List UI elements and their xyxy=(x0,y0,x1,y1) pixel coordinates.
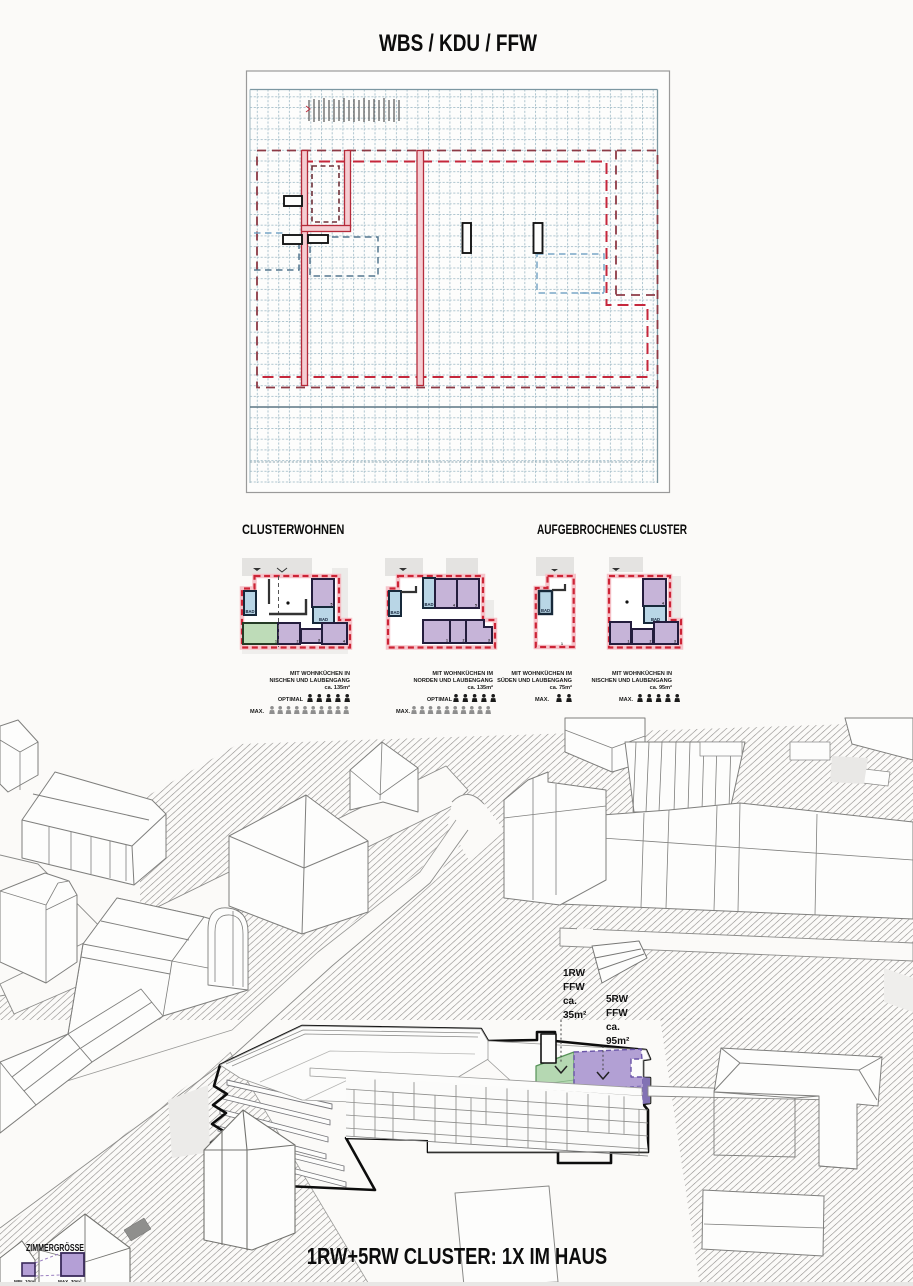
svg-text:2: 2 xyxy=(463,639,465,643)
svg-text:5: 5 xyxy=(475,604,477,608)
svg-text:MAX.: MAX. xyxy=(619,697,633,703)
svg-text:MIT WOHNKÜCHEN IM: MIT WOHNKÜCHEN IM xyxy=(511,670,572,677)
svg-text:BAD: BAD xyxy=(541,608,550,613)
svg-text:MAX.: MAX. xyxy=(535,697,549,703)
svg-text:FFW: FFW xyxy=(606,1008,628,1019)
svg-text:NISCHEN UND LAUBENGANG: NISCHEN UND LAUBENGANG xyxy=(592,678,673,684)
svg-text:NISCHEN UND LAUBENGANG: NISCHEN UND LAUBENGANG xyxy=(270,678,351,684)
svg-text:2: 2 xyxy=(650,640,652,644)
svg-text:1: 1 xyxy=(446,639,448,643)
svg-text:4: 4 xyxy=(453,604,455,608)
svg-text:1RW: 1RW xyxy=(563,968,586,979)
svg-text:OPTIMAL: OPTIMAL xyxy=(278,697,304,703)
svg-text:ca. 75m²: ca. 75m² xyxy=(550,684,573,691)
svg-text:ca. 135m²: ca. 135m² xyxy=(325,684,351,691)
svg-text:4: 4 xyxy=(662,602,664,606)
svg-text:5RW: 5RW xyxy=(606,994,629,1005)
svg-text:35m²: 35m² xyxy=(563,1010,587,1021)
svg-text:2: 2 xyxy=(297,640,299,644)
svg-text:ca.: ca. xyxy=(563,996,577,1007)
svg-text:5: 5 xyxy=(331,603,333,607)
svg-text:BAD: BAD xyxy=(319,617,328,622)
svg-text:OPTIMAL: OPTIMAL xyxy=(427,697,453,703)
svg-text:ca. 135m²: ca. 135m² xyxy=(468,684,494,691)
svg-text:1: 1 xyxy=(275,640,277,644)
svg-text:MIT WOHNKÜCHEN IN: MIT WOHNKÜCHEN IN xyxy=(290,670,350,677)
svg-text:ca. 95m²: ca. 95m² xyxy=(650,684,673,691)
svg-text:BAD: BAD xyxy=(651,617,660,622)
svg-text:SÜDEN UND LAUBENGANG: SÜDEN UND LAUBENGANG xyxy=(497,677,572,684)
svg-text:BAD: BAD xyxy=(391,610,400,615)
svg-text:3: 3 xyxy=(318,639,320,643)
svg-text:95m²: 95m² xyxy=(606,1036,630,1047)
svg-text:BAD: BAD xyxy=(246,609,255,614)
svg-text:MAX.: MAX. xyxy=(396,709,410,715)
svg-text:FFW: FFW xyxy=(563,982,585,993)
svg-text:1: 1 xyxy=(561,642,563,646)
svg-text:MAX.: MAX. xyxy=(250,709,264,715)
svg-text:BAD: BAD xyxy=(425,602,434,607)
svg-text:1: 1 xyxy=(628,640,630,644)
svg-text:ca.: ca. xyxy=(606,1022,620,1033)
svg-text:ZIMMERGRÖSSE: ZIMMERGRÖSSE xyxy=(26,1241,84,1254)
svg-text:4: 4 xyxy=(343,640,345,644)
svg-text:NORDEN UND LAUBENGANG: NORDEN UND LAUBENGANG xyxy=(413,678,493,684)
svg-text:MIT WOHNKÜCHEN IN: MIT WOHNKÜCHEN IN xyxy=(612,670,672,677)
svg-text:MIT WOHNKÜCHEN IM: MIT WOHNKÜCHEN IM xyxy=(432,670,493,677)
svg-text:3: 3 xyxy=(488,639,490,643)
svg-text:3: 3 xyxy=(674,640,676,644)
